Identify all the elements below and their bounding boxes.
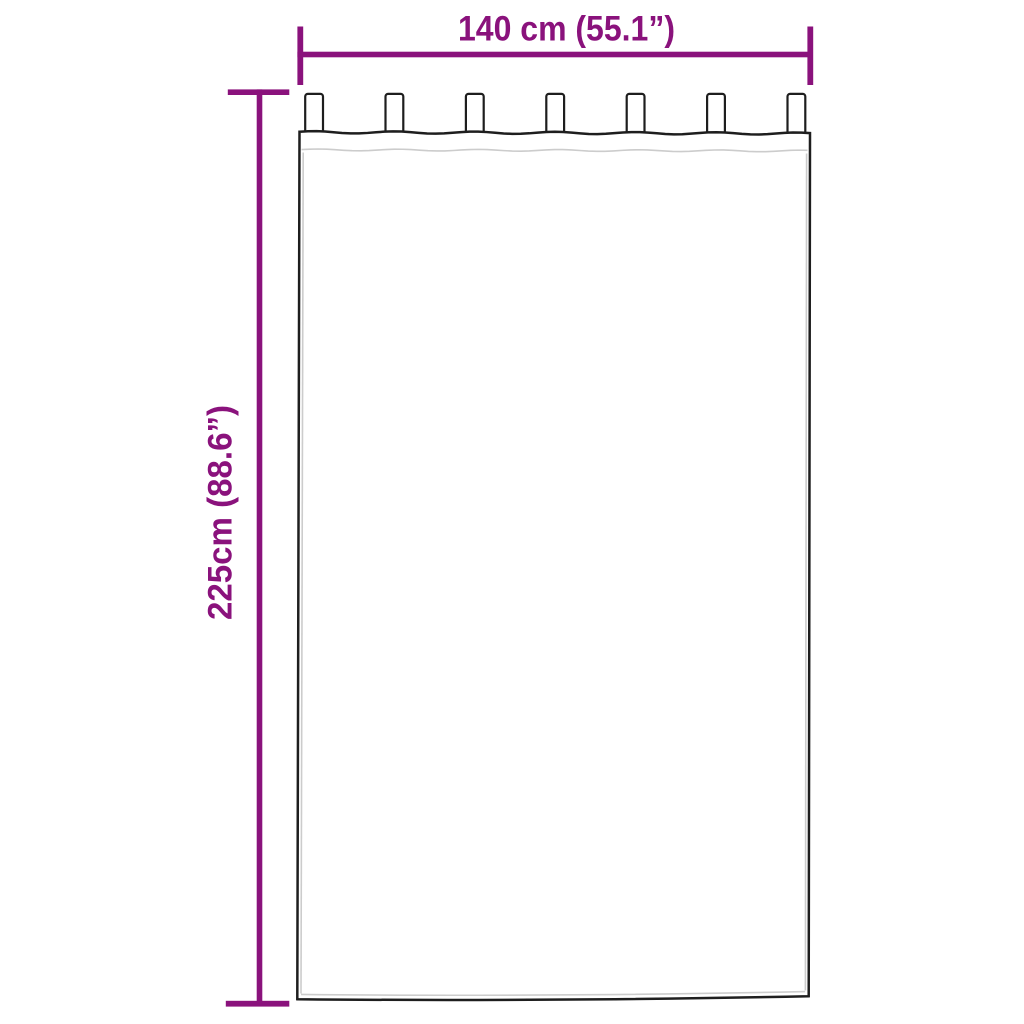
svg-text:225cm (88.6”): 225cm (88.6”) xyxy=(202,405,240,620)
svg-text:140 cm (55.1”): 140 cm (55.1”) xyxy=(458,9,675,49)
